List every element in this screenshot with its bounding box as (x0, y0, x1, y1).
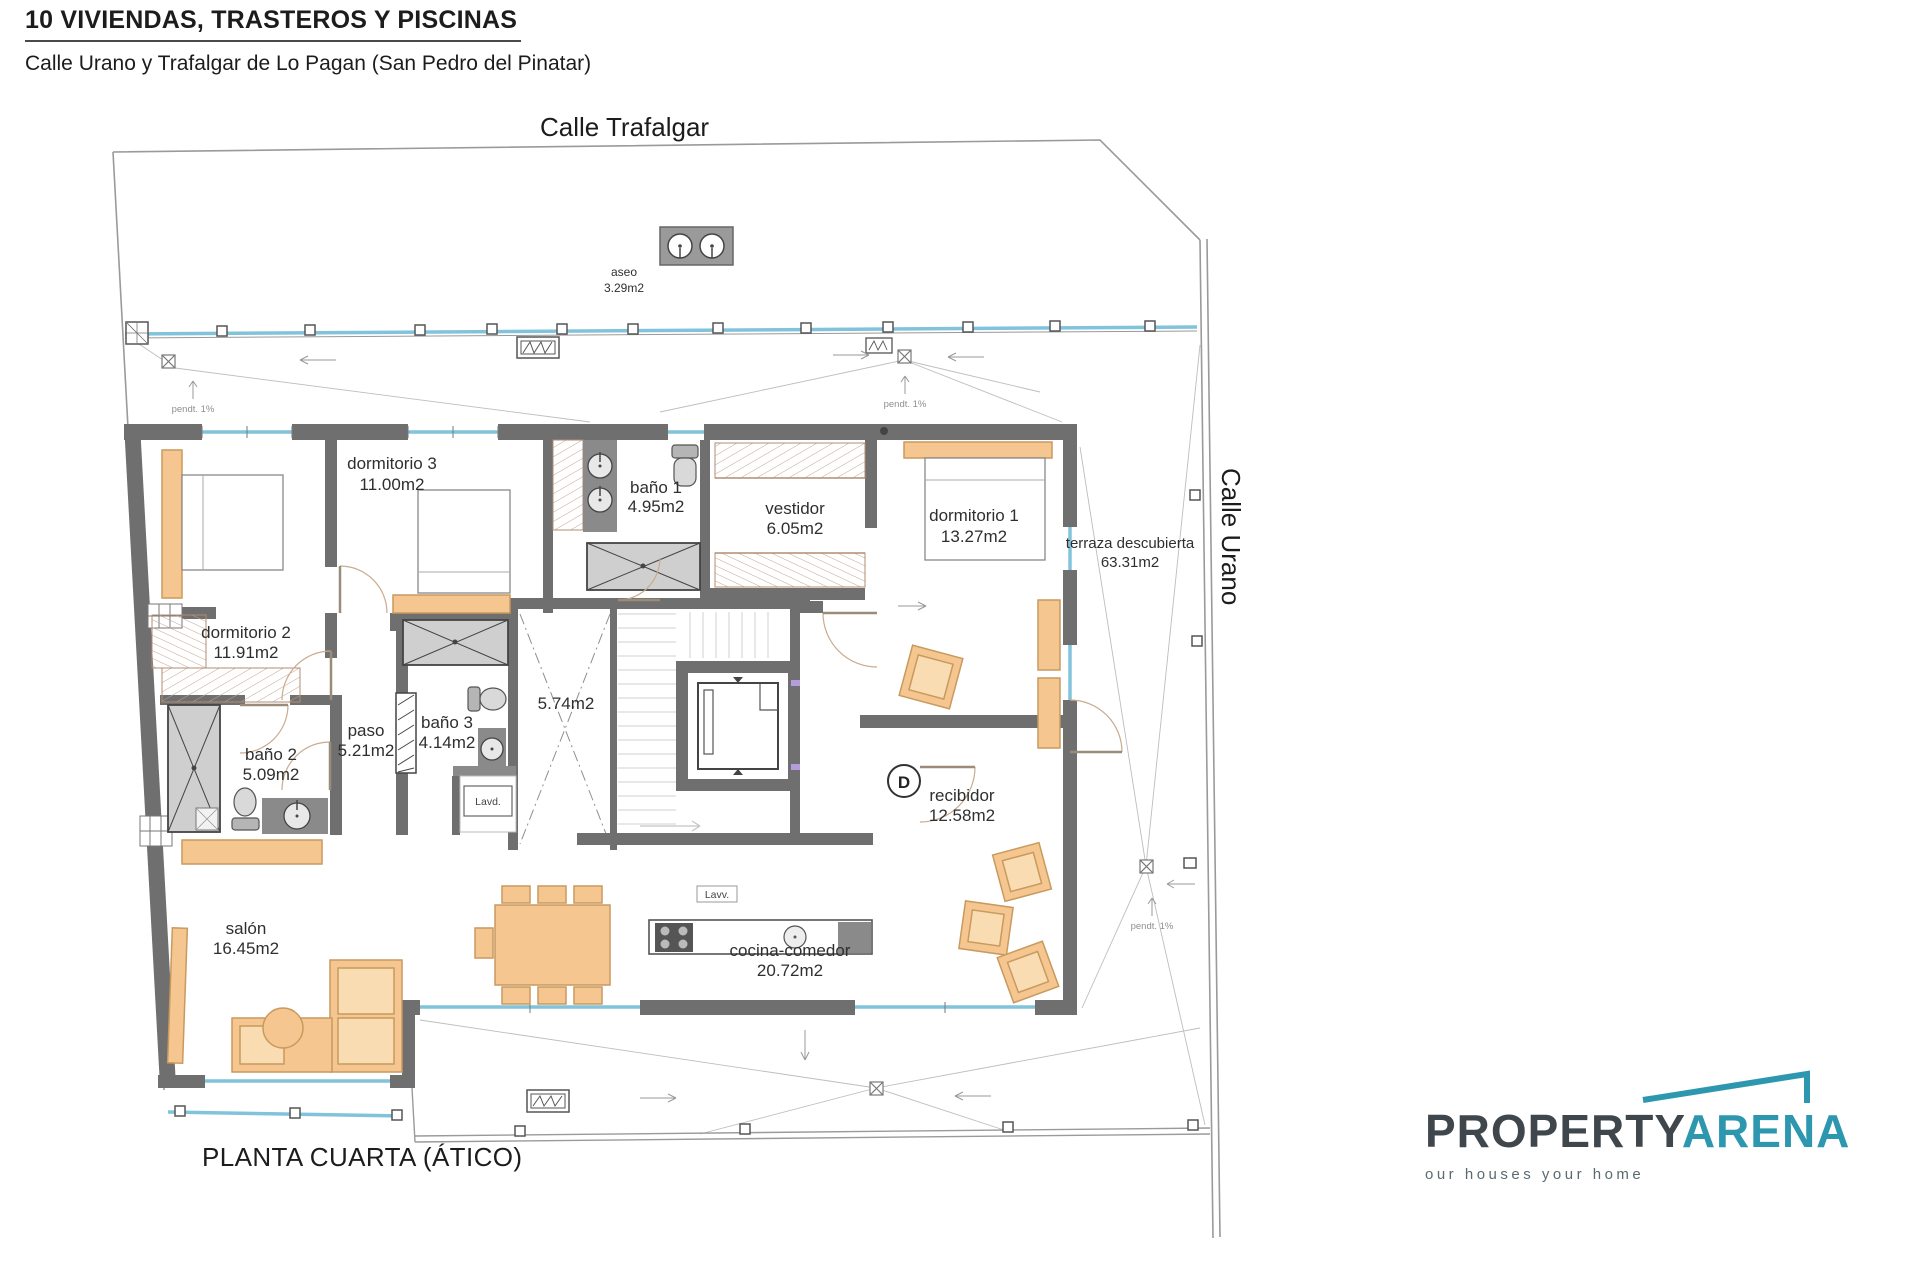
salon-furniture (168, 840, 402, 1072)
room-label-terraza: terraza descubierta (1066, 535, 1195, 552)
bed-dormitorio-2 (162, 450, 283, 598)
wall-column-dot (880, 427, 888, 435)
l-sofa (232, 960, 402, 1072)
room-area-cocina: 20.72m2 (757, 961, 823, 980)
elevator (676, 661, 800, 791)
room-label-salon: salón (226, 919, 267, 938)
room-area-patio: 5.74m2 (538, 694, 595, 713)
sliding-door-bano3 (396, 693, 416, 773)
patio-marking (520, 614, 610, 844)
aseo-vent-unit (660, 227, 733, 265)
dwelling-door-marker: D (888, 765, 920, 797)
svg-text:D: D (898, 773, 910, 792)
room-label-bano3: baño 3 (421, 713, 473, 732)
room-area-bano1: 4.95m2 (628, 497, 685, 516)
room-area-vestidor: 6.05m2 (767, 519, 824, 538)
room-label-paso: paso (348, 721, 385, 740)
room-area-salon: 16.45m2 (213, 939, 279, 958)
room-area-dormitorio1: 13.27m2 (941, 527, 1007, 546)
room-label-dormitorio1: dormitorio 1 (929, 506, 1019, 525)
room-area-dormitorio3: 11.00m2 (360, 475, 425, 494)
slope-label: pendt. 1% (1131, 921, 1174, 932)
dishwasher-label: Lavv. (705, 889, 729, 901)
slope-label: pendt. 1% (172, 404, 215, 415)
floor-plan: pendt. 1% pendt. 1% pendt. 1% D aseo 3.2… (0, 0, 1920, 1280)
hall-closets (1038, 600, 1060, 748)
room-area-paso: 5.21m2 (338, 741, 395, 760)
room-area-bano2: 5.09m2 (243, 765, 300, 784)
dining-set (475, 886, 610, 1004)
room-label-bano2: baño 2 (245, 745, 297, 764)
room-area-dormitorio2: 11.91m2 (214, 643, 279, 662)
room-area-recibidor: 12.58m2 (929, 806, 995, 825)
laundry-label: Lavd. (475, 796, 501, 808)
room-label-recibidor: recibidor (929, 786, 995, 805)
room-area-terraza: 63.31m2 (1101, 554, 1159, 571)
bed-dormitorio-3 (393, 490, 510, 613)
room-label-dormitorio3: dormitorio 3 (347, 454, 437, 473)
terrace-railing-bottom-left (168, 1106, 402, 1120)
room-area-bano3: 4.14m2 (419, 733, 476, 752)
pouf (263, 1008, 303, 1048)
room-label-aseo: aseo (611, 265, 637, 279)
room-label-dormitorio2: dormitorio 2 (201, 623, 291, 642)
room-area-aseo: 3.29m2 (604, 281, 644, 295)
room-label-bano1: baño 1 (630, 478, 682, 497)
room-label-vestidor: vestidor (765, 499, 825, 518)
slope-label: pendt. 1% (884, 399, 927, 410)
terrace-railing-top (125, 321, 1197, 344)
room-label-cocina: cocina-comedor (730, 941, 851, 960)
